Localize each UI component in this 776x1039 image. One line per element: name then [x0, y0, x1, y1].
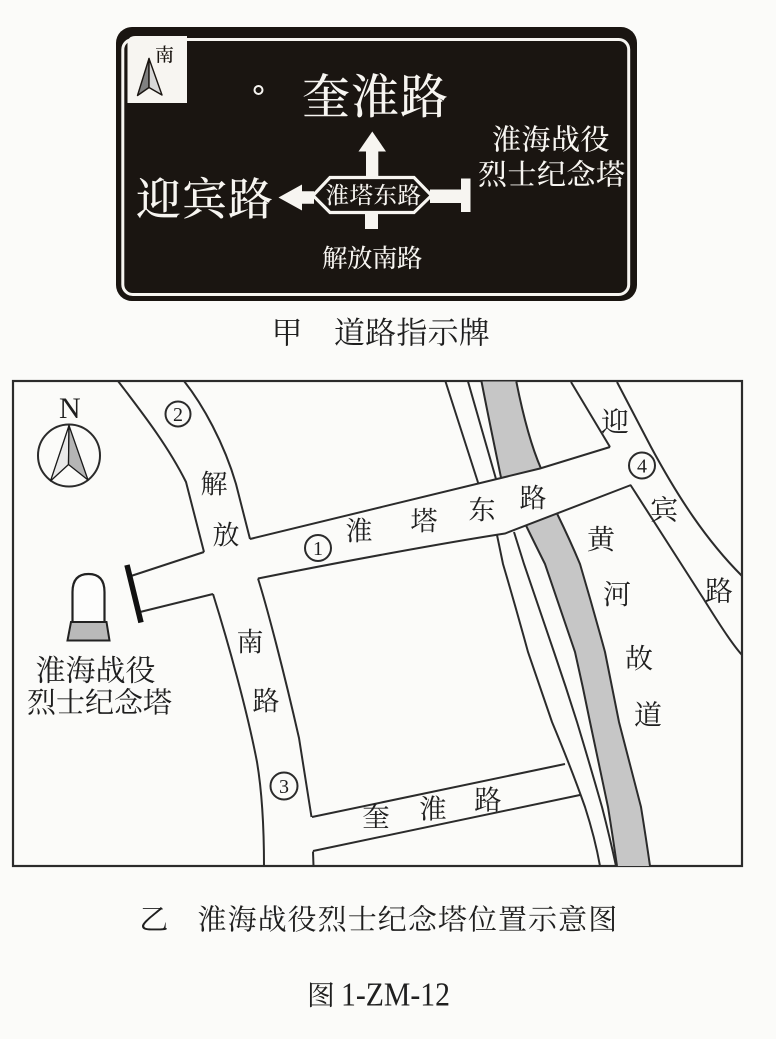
svg-text:3: 3	[279, 776, 289, 798]
svg-text:1: 1	[313, 538, 323, 560]
svg-text:N: N	[59, 392, 81, 425]
svg-text:4: 4	[637, 456, 647, 478]
svg-text:2: 2	[173, 404, 183, 426]
svg-text:1-ZM-12: 1-ZM-12	[341, 976, 450, 1013]
